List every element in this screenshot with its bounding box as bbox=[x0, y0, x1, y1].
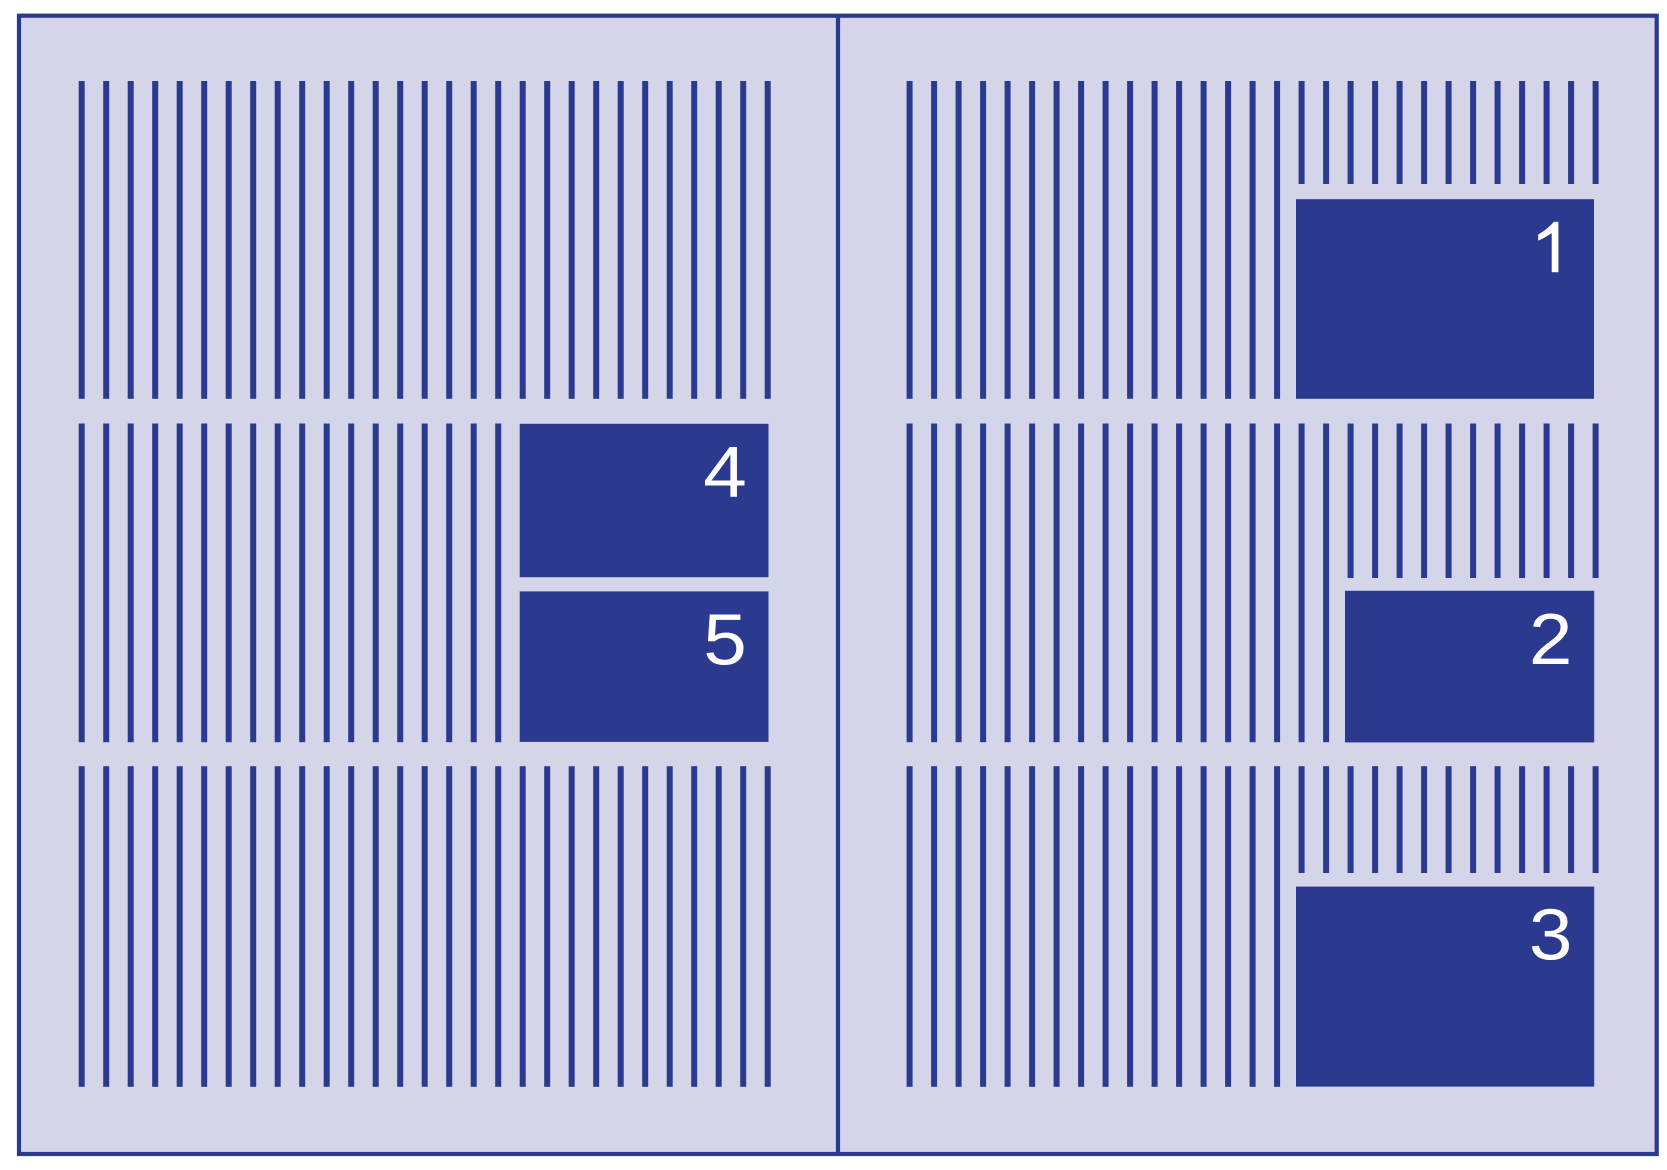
svg-text:4: 4 bbox=[703, 431, 747, 512]
svg-text:2: 2 bbox=[1529, 598, 1573, 679]
svg-text:3: 3 bbox=[1529, 894, 1573, 975]
svg-text:5: 5 bbox=[703, 599, 747, 680]
